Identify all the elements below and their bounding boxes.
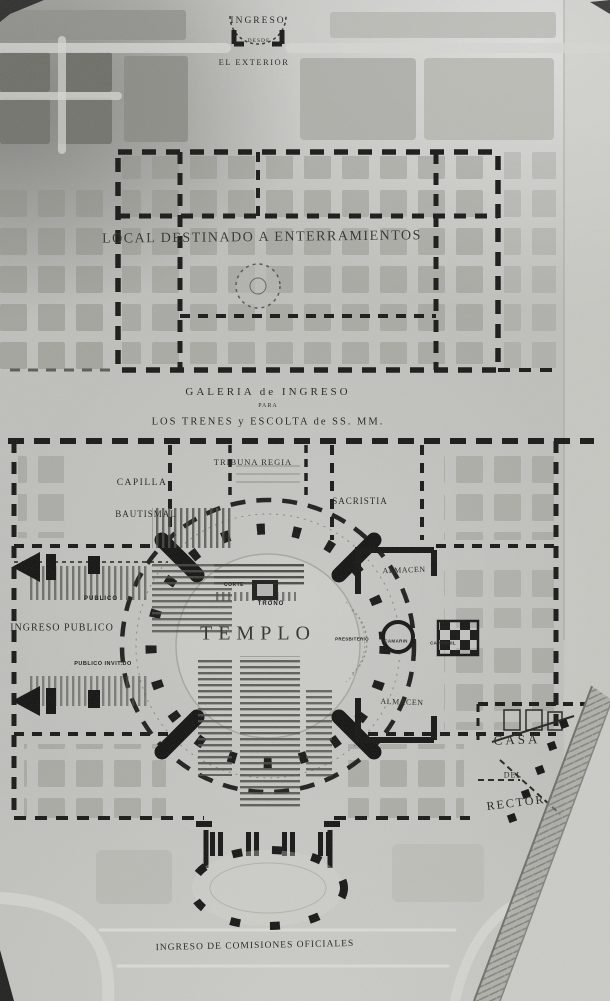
label-presbiterio: PRESBITERIO xyxy=(335,637,369,642)
plan-drawing xyxy=(0,0,610,1001)
label-entrance-exterior: EL EXTERIOR xyxy=(219,57,290,67)
label-trono: TRONO xyxy=(258,601,285,607)
label-casa: CASA xyxy=(493,731,540,749)
label-gallery-line1: GALERIA de INGRESO xyxy=(185,386,350,398)
label-sacristia: SACRISTIA xyxy=(332,496,388,506)
label-cemetery: LOCAL DESTINADO A ENTERRAMIENTOS xyxy=(102,228,422,247)
label-gallery-line2: PARA xyxy=(258,403,277,409)
label-campanil: CAMPANIL xyxy=(430,641,456,646)
label-entrance-desde: DESDE xyxy=(248,38,271,44)
label-ingreso-publico: INGRESO PUBLICO xyxy=(10,623,114,634)
label-almacen-sur: ALMACEN xyxy=(380,697,423,707)
photo-grain xyxy=(0,0,610,1001)
label-publico: PUBLICO xyxy=(84,596,118,602)
label-almacen-norte: ALMACEN xyxy=(382,565,425,575)
label-gallery-line3: LOS TRENES y ESCOLTA de SS. MM. xyxy=(152,417,385,428)
label-publico-invitado: PUBLICO INVIT.DO xyxy=(74,661,132,667)
label-entrance-top: INGRESO xyxy=(230,16,285,26)
plan-photo: INGRESO DESDE EL EXTERIOR LOCAL DESTINAD… xyxy=(0,0,610,1001)
label-camarin: CAMARIN xyxy=(384,639,407,644)
label-corte: CORTE xyxy=(224,582,244,588)
label-bautismal: BAUTISMAL xyxy=(115,509,177,519)
label-templo: TEMPLO xyxy=(200,623,316,646)
label-capilla: CAPILLA xyxy=(117,478,168,488)
label-tribuna-regia: TRIBUNA REGIA xyxy=(214,457,292,467)
label-del: DEL xyxy=(504,771,523,780)
